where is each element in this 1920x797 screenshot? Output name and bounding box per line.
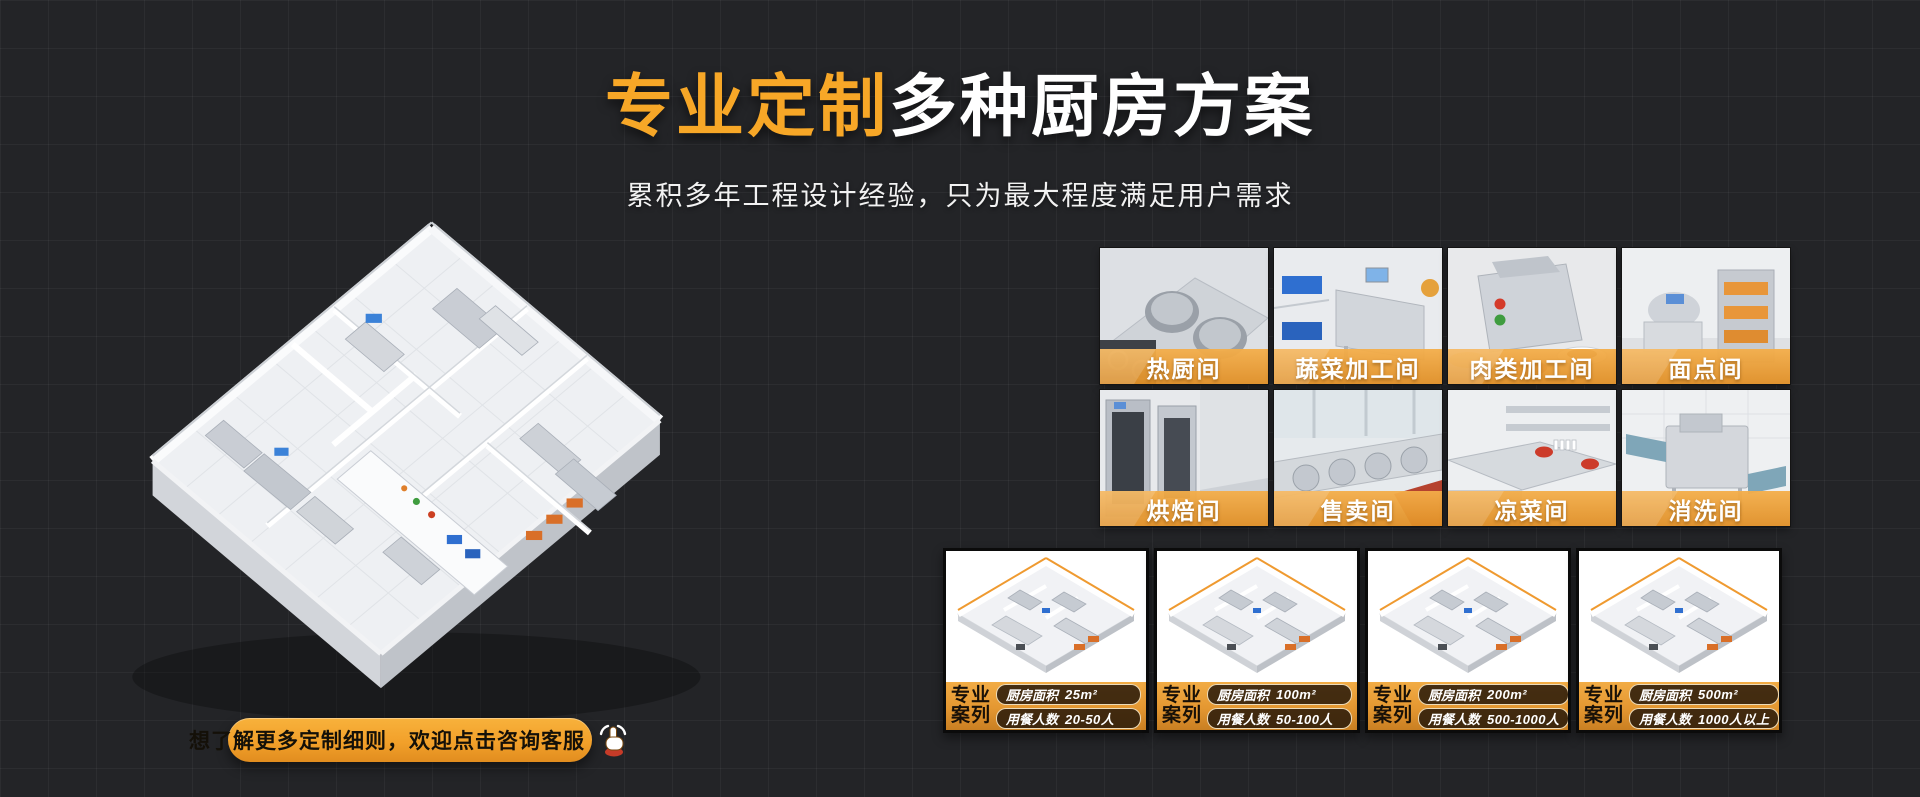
room-tile-label: 面点间 [1622, 349, 1790, 384]
kitchen-floorplan-illustration [112, 192, 802, 732]
page-title-rest: 多种厨房方案 [889, 69, 1315, 145]
case-floorplan-500m2 [1579, 551, 1779, 685]
case-floorplan-25m2 [946, 551, 1146, 685]
tile-cold-dish: 凉菜间 [1448, 390, 1616, 526]
diner-count-pill: 用餐人数500-1000人 [1418, 708, 1569, 729]
kitchen-area-pill: 厨房面积500m² [1629, 684, 1779, 705]
page-title-highlight: 专业定制 [605, 69, 889, 145]
promo-banner: 专业定制多种厨房方案 累积多年工程设计经验，只为最大程度满足用户需求 [0, 0, 1920, 797]
case-floorplan-200m2 [1368, 551, 1568, 685]
room-tile-label: 凉菜间 [1448, 491, 1616, 526]
room-tile-label: 售卖间 [1274, 491, 1442, 526]
room-tile-label: 热厨间 [1100, 349, 1268, 384]
diner-count-pill: 用餐人数50-100人 [1207, 708, 1352, 729]
contact-service-button[interactable]: 想了解更多定制细则，欢迎点击咨询客服 [228, 718, 592, 762]
diner-count-pill: 用餐人数1000人以上 [1629, 708, 1779, 729]
kitchen-area-pill: 厨房面积100m² [1207, 684, 1352, 705]
kitchen-area-pill: 厨房面积200m² [1418, 684, 1569, 705]
tile-hot-kitchen: 热厨间 [1100, 248, 1268, 384]
contact-service-label: 想了解更多定制细则，欢迎点击咨询客服 [189, 725, 585, 755]
tile-meat-processing: 肉类加工间 [1448, 248, 1616, 384]
case-floorplan-100m2 [1157, 551, 1357, 685]
room-gallery: 热厨间 蔬菜加工间 [1100, 248, 1790, 526]
case-card-200m2: 专业案列 厨房面积200m² 用餐人数500-1000人 [1365, 548, 1571, 733]
click-hand-icon [595, 722, 631, 758]
case-badge: 专业案列 [1162, 686, 1202, 726]
page-title: 专业定制多种厨房方案 [0, 62, 1920, 152]
case-badge: 专业案列 [1584, 686, 1624, 726]
case-badge: 专业案列 [951, 686, 991, 726]
case-cards: 专业案列 厨房面积25m² 用餐人数20-50人 专业案列 [943, 548, 1782, 733]
room-tile-label: 消洗间 [1622, 491, 1790, 526]
diner-count-pill: 用餐人数20-50人 [996, 708, 1141, 729]
tile-pastry: 面点间 [1622, 248, 1790, 384]
tile-sales: 售卖间 [1274, 390, 1442, 526]
room-tile-label: 烘焙间 [1100, 491, 1268, 526]
tile-washing: 消洗间 [1622, 390, 1790, 526]
room-tile-label: 蔬菜加工间 [1274, 349, 1442, 384]
floorplan-3d-icon [112, 192, 802, 730]
case-card-500m2: 专业案列 厨房面积500m² 用餐人数1000人以上 [1576, 548, 1782, 733]
tile-vegetable-processing: 蔬菜加工间 [1274, 248, 1442, 384]
room-tile-label: 肉类加工间 [1448, 349, 1616, 384]
case-card-100m2: 专业案列 厨房面积100m² 用餐人数50-100人 [1154, 548, 1360, 733]
case-badge: 专业案列 [1373, 686, 1413, 726]
case-card-25m2: 专业案列 厨房面积25m² 用餐人数20-50人 [943, 548, 1149, 733]
kitchen-area-pill: 厨房面积25m² [996, 684, 1141, 705]
tile-baking: 烘焙间 [1100, 390, 1268, 526]
